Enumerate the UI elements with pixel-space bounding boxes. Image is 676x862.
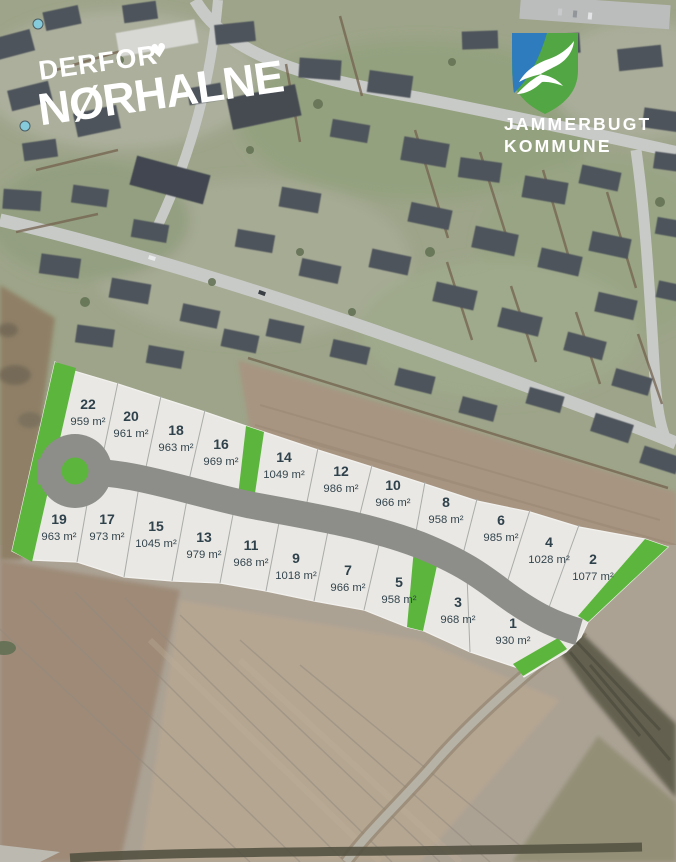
plot-area: 966 m²: [330, 582, 365, 594]
plot-number: 14: [276, 449, 292, 465]
plot-area: 930 m²: [495, 635, 530, 647]
plot-number: 11: [244, 537, 259, 553]
plot-area: 959 m²: [70, 416, 105, 428]
plot-number: 12: [333, 463, 349, 479]
plot-number: 22: [80, 396, 96, 412]
municipality-name-line2: KOMMUNE: [504, 136, 612, 156]
plot-area: 1028 m²: [528, 554, 570, 566]
plot-area: 985 m²: [483, 532, 518, 544]
plot-area: 958 m²: [428, 514, 463, 526]
plot-number: 6: [497, 512, 505, 528]
plot-number: 19: [51, 511, 67, 527]
site-plan-flyer: 22 959 m² 20 961 m² 18 963 m² 16 969 m² …: [0, 0, 676, 862]
plot-area: 966 m²: [375, 497, 410, 509]
plot-area: 958 m²: [381, 594, 416, 606]
plot-area: 963 m²: [41, 531, 76, 543]
plot-area: 963 m²: [158, 442, 193, 454]
plot-number: 8: [442, 494, 450, 510]
plot-number: 4: [545, 534, 553, 550]
aerial-map: 22 959 m² 20 961 m² 18 963 m² 16 969 m² …: [0, 0, 676, 862]
plot-number: 9: [292, 550, 300, 566]
plot-number: 10: [385, 477, 401, 493]
plot-area: 1049 m²: [263, 469, 305, 481]
plot-area: 986 m²: [323, 483, 358, 495]
plot-area: 1077 m²: [572, 571, 614, 583]
municipality-name-line1: JAMMERBUGT: [504, 114, 651, 134]
plot-number: 20: [123, 408, 139, 424]
plot-area: 968 m²: [440, 614, 475, 626]
plot-number: 7: [344, 562, 352, 578]
plot-area: 1045 m²: [135, 538, 177, 550]
plot-number: 3: [454, 594, 462, 610]
heart-icon: ♥: [149, 39, 169, 63]
plot-area: 979 m²: [186, 549, 221, 561]
plot-number: 17: [99, 511, 115, 527]
plot-area: 969 m²: [203, 456, 238, 468]
plot-number: 16: [213, 436, 229, 452]
plot-number: 2: [589, 551, 597, 567]
plot-area: 973 m²: [89, 531, 124, 543]
roundabout-center-island: [62, 458, 89, 485]
plot-number: 13: [196, 529, 212, 545]
plot-number: 5: [395, 574, 403, 590]
plot-number: 1: [509, 615, 517, 631]
plot-area: 961 m²: [113, 428, 148, 440]
plot-area: 968 m²: [233, 557, 268, 569]
plot-number: 18: [168, 422, 184, 438]
plot-area: 1018 m²: [275, 570, 317, 582]
plot-number: 15: [148, 518, 164, 534]
